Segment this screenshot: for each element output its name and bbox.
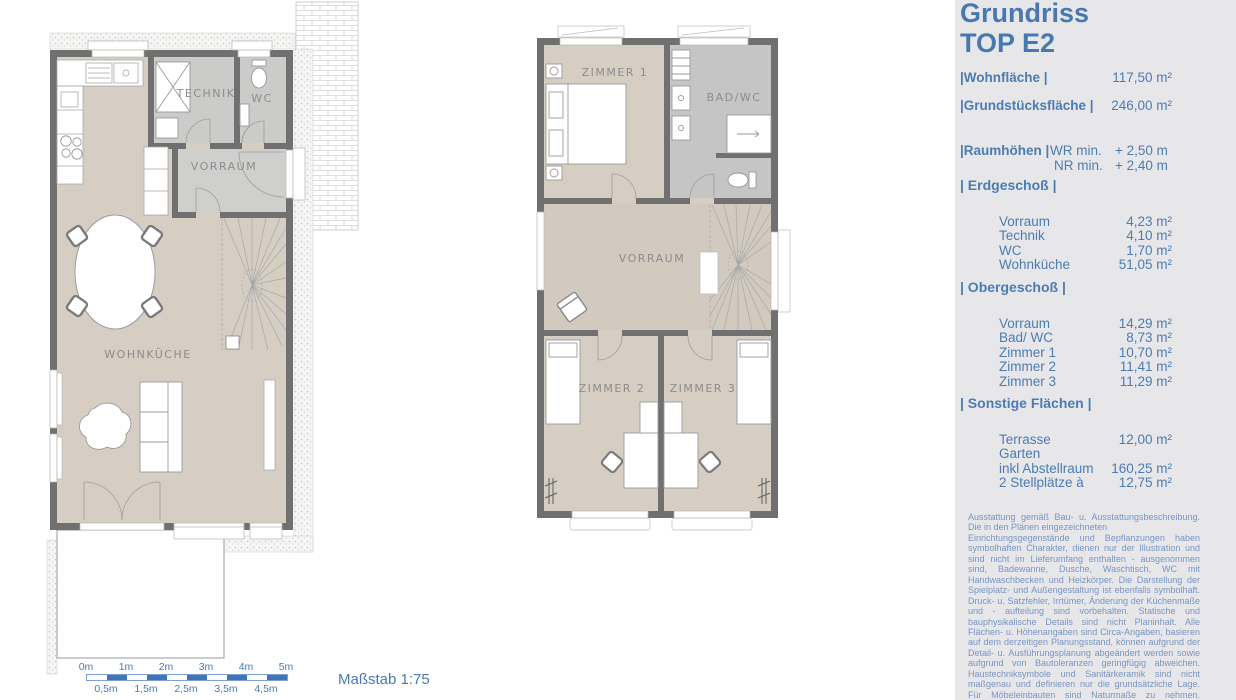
obergeschoss-section: | Obergeschoß | Vorraum 14,29 m² Bad/ WC… [955,280,1236,389]
area-row: Zimmer 2 11,41 m² [955,360,1236,375]
area-row: Wohnküche 51,05 m² [955,258,1236,273]
area-row: WC 1,70 m² [955,244,1236,259]
summary-row: |Wohnfläche | 117,50 m² [955,71,1236,86]
wall-shelf [264,380,275,470]
upper-floor-plan: ZIMMER 1 BAD/WC VORRAUM ZIMMER 2 ZIMMER … [530,20,800,560]
area-value: 12,00 m² [1119,433,1172,448]
label-zimmer3: ZIMMER 3 [670,382,737,395]
area-value: 1,70 m² [1126,244,1172,259]
area-value: 10,70 m² [1119,346,1172,361]
area-label: WC [999,244,1022,259]
scale-label: 2m [159,661,174,673]
area-row: Vorraum 4,23 m² [955,215,1236,230]
scale-label: 2,5m [174,683,197,695]
area-row: Technik 4,10 m² [955,229,1236,244]
grundstuecksflaeche-value: 246,00 m² [1111,99,1172,114]
label-technik: TECHNIK [176,87,236,100]
area-value: 8,73 m² [1126,331,1172,346]
area-label: Vorraum [999,215,1050,230]
shower-icon [727,115,771,153]
area-row: Zimmer 1 10,70 m² [955,346,1236,361]
label-vorraum-og: VORRAUM [619,252,685,265]
scale-label: 0m [79,661,94,673]
area-row: Bad/ WC 8,73 m² [955,331,1236,346]
erdgeschoss-heading: | Erdgeschoß | [955,178,1236,193]
scale-bar: 0m 1m 2m 3m 4m 5m 0,5m 1,5m 2,5m 3,5m 4,… [86,661,286,699]
area-row: Terrasse 12,00 m² [955,433,1236,448]
page-title: Grundriss TOP E2 [960,0,1089,58]
scale-caption: Maßstab 1:75 [338,671,430,688]
info-panel: Grundriss TOP E2 |Wohnfläche | 117,50 m²… [955,0,1236,700]
area-label: Garten [999,447,1040,462]
label-wohnkueche: WOHNKÜCHE [104,348,191,361]
label-vorraum-eg: VORRAUM [191,160,257,173]
area-label: Bad/ WC [999,331,1053,346]
area-value: 11,41 m² [1120,360,1172,375]
area-row: Vorraum 14,29 m² [955,317,1236,332]
wohnflaeche-value: 117,50 m² [1112,71,1172,86]
disclaimer-paragraph-2: Einrichtungsgegenstände und Bepflanzunge… [968,533,1200,700]
scale-label: 4m [239,661,254,673]
area-row: Zimmer 3 11,29 m² [955,375,1236,390]
area-label: Terrasse [999,433,1051,448]
area-row: inkl Abstellraum 160,25 m² [955,462,1236,477]
wr-min-key: WR min. [1050,144,1102,159]
scale-label: 1m [119,661,134,673]
area-label: Vorraum [999,317,1050,332]
scale-label: 3,5m [214,683,237,695]
sofa [140,382,182,472]
scale-bar-segments [86,674,288,681]
area-value: 11,29 m² [1120,375,1172,390]
area-row: 2 Stellplätze à 12,75 m² [955,476,1236,491]
area-label: Zimmer 1 [999,346,1056,361]
title-line1: Grundriss [960,0,1089,28]
area-value: 4,23 m² [1126,215,1172,230]
area-label: Zimmer 2 [999,360,1056,375]
area-value: 160,25 m² [1111,462,1172,477]
area-label: 2 Stellplätze à [999,476,1084,491]
area-value: 4,10 m² [1126,229,1172,244]
title-line2: TOP E2 [960,28,1089,58]
raumhoehen-row: NR min. + 2,40 m [955,159,1236,174]
scale-label: 0,5m [94,683,117,695]
scale-label: 5m [279,661,294,673]
area-label: inkl Abstellraum [999,462,1094,477]
area-value: 51,05 m² [1119,258,1172,273]
label-zimmer2: ZIMMER 2 [579,382,646,395]
area-label: Technik [999,229,1045,244]
raumhoehen-row: |Raumhöhen | WR min. + 2,50 m [955,144,1236,159]
area-label: Zimmer 3 [999,375,1056,390]
terrace [57,530,224,658]
grundstuecksflaeche-label: |Grundstücksfläche | [960,99,1094,114]
scale-label: 4,5m [254,683,277,695]
toilet-icon [728,172,756,188]
area-label: Wohnküche [999,258,1070,273]
area-row: Garten [955,447,1236,462]
label-wc: WC [251,92,273,105]
sonstige-section: | Sonstige Flächen | Terrasse 12,00 m² G… [955,396,1236,491]
ground-floor-plan: TECHNIK WC VORRAUM WOHNKÜCHE [0,0,400,700]
summary-block: |Wohnfläche | 117,50 m² |Grundstücksfläc… [955,71,1236,113]
raumhoehen-label: |Raumhöhen | [960,144,1049,159]
nr-min-key: NR min. [1054,159,1103,174]
scale-label: 1,5m [134,683,157,695]
floorplan-sheet: TECHNIK WC VORRAUM WOHNKÜCHE [0,0,1236,700]
label-bad-wc: BAD/WC [707,91,762,104]
room-vorraum-eg [178,149,286,212]
area-value: 14,29 m² [1119,317,1172,332]
label-zimmer1: ZIMMER 1 [582,66,649,79]
sonstige-heading: | Sonstige Flächen | [955,396,1236,411]
disclaimer-text: Ausstattung gemäß Bau- u. Ausstattungsbe… [968,512,1200,700]
obergeschoss-heading: | Obergeschoß | [955,280,1236,295]
summary-row: |Grundstücksfläche | 246,00 m² [955,99,1236,114]
area-value: 12,75 m² [1119,476,1172,491]
wohnflaeche-label: |Wohnfläche | [960,71,1048,86]
erdgeschoss-section: | Erdgeschoß | Vorraum 4,23 m² Technik 4… [955,178,1236,273]
raumhoehen-block: |Raumhöhen | WR min. + 2,50 m NR min. + … [955,144,1236,174]
scale-label: 3m [199,661,214,673]
dining-table [66,215,163,329]
wr-min-value: + 2,50 m [1115,144,1168,159]
disclaimer-paragraph-1: Ausstattung gemäß Bau- u. Ausstattungsbe… [968,512,1200,533]
nr-min-value: + 2,40 m [1115,159,1168,174]
